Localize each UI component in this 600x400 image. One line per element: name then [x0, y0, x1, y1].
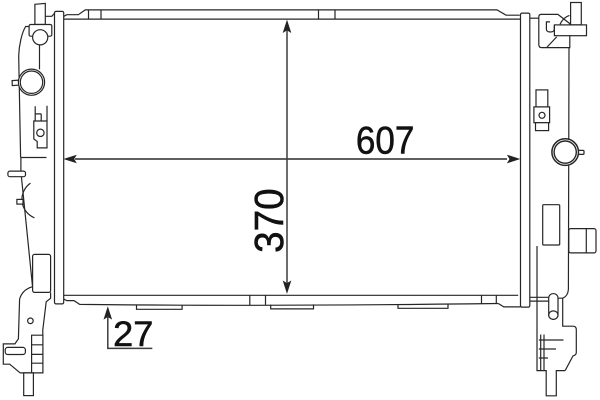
- svg-text:27: 27: [113, 315, 153, 354]
- svg-text:370: 370: [246, 188, 292, 253]
- svg-text:607: 607: [356, 119, 415, 163]
